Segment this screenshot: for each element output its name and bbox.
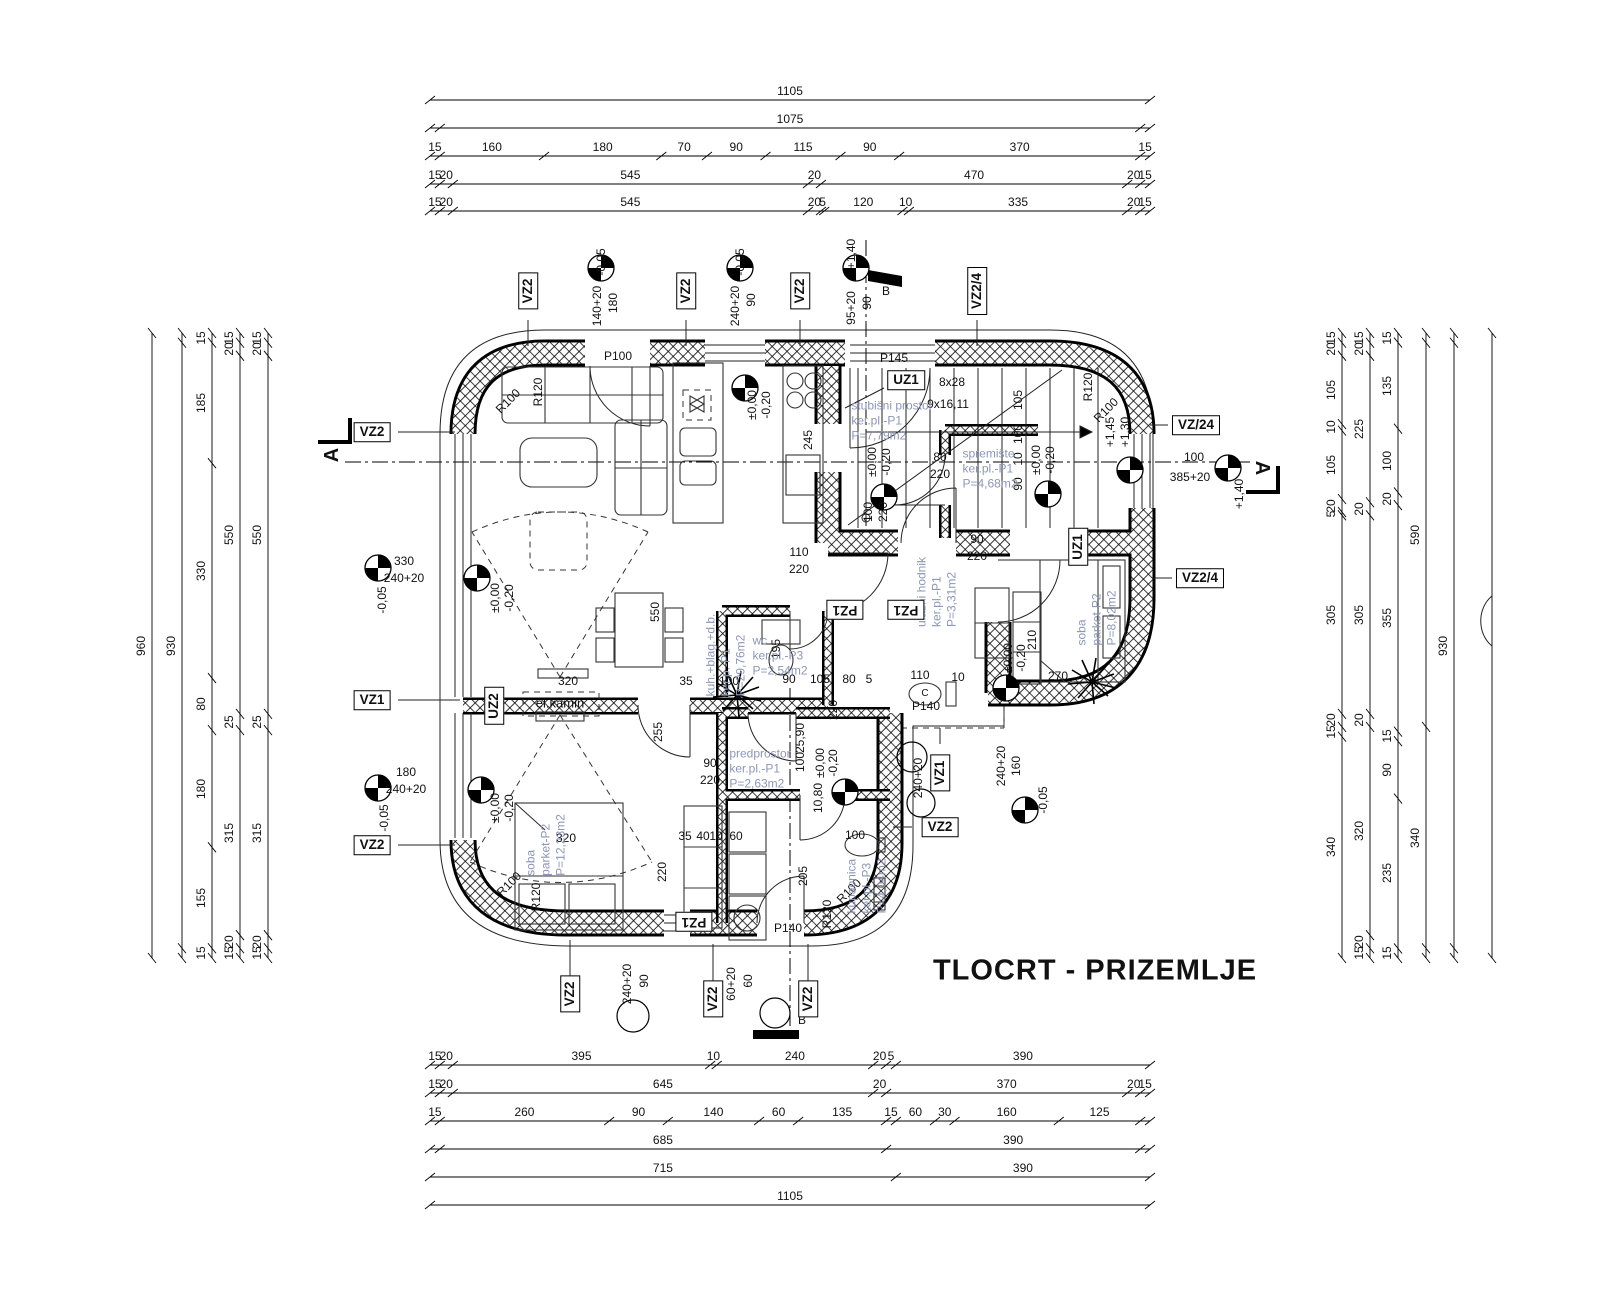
annotation: P140: [912, 700, 940, 712]
wall-type-marker: VZ1: [354, 690, 391, 710]
wall-type-marker: UZ1: [887, 370, 925, 390]
annotation: 110: [910, 669, 929, 681]
dim-label: 15: [1138, 196, 1151, 208]
annotation: 35: [679, 675, 692, 687]
annotation: 220: [700, 774, 720, 786]
wall-type-marker: VZ2: [354, 835, 391, 855]
annotation: 5: [866, 673, 873, 685]
dim-label: 15: [1381, 947, 1393, 960]
dim-label: 90: [730, 141, 743, 153]
dim-label: 15: [428, 1106, 441, 1118]
wall-type-marker: VZ1: [930, 755, 950, 792]
annotation: 245: [802, 430, 814, 450]
dim-label: 305: [1353, 605, 1365, 625]
wall-type-marker: PZ1: [827, 600, 864, 620]
annotation: 100: [1184, 451, 1204, 463]
dim-label: 390: [1013, 1162, 1033, 1174]
annotation: 100: [794, 752, 806, 772]
annotation: 100: [862, 502, 874, 522]
annotation: +1,40: [845, 239, 857, 269]
wall-type-marker: VZ/24: [1172, 415, 1220, 435]
dim-label: 60: [909, 1106, 922, 1118]
wall-type-marker: VZ2: [518, 273, 538, 310]
dim-label: 685: [653, 1134, 673, 1146]
room-label: wcker.pl.-P3P=2,54m2: [752, 632, 807, 677]
annotation: 9x16,11: [927, 398, 969, 410]
dim-label: 15: [251, 946, 263, 959]
wall-type-marker: VZ2: [676, 273, 696, 310]
annotation: 180: [396, 766, 416, 778]
dim-label: 180: [195, 779, 207, 799]
annotation: R120: [821, 900, 833, 929]
floor-plan-sheet: TLOCRT - PRIZEMLJE 110510751516018070901…: [0, 0, 1600, 1308]
annotation: 180: [607, 293, 619, 313]
dim-label: 20: [440, 1078, 453, 1090]
annotation: 240+20: [912, 758, 924, 798]
annotation: ±0,00: [1030, 445, 1042, 475]
room-label-line: ker.pl.-P1: [962, 460, 1017, 475]
annotation: 105: [810, 673, 830, 685]
wall-type-marker: VZ2/4: [1176, 568, 1224, 588]
datum-point: [832, 779, 858, 805]
datum-point: [464, 565, 490, 591]
annotation: 90: [703, 757, 716, 769]
room-label-line: kupaonica: [843, 858, 858, 913]
dim-label: 330: [195, 561, 207, 581]
dim-label: 550: [251, 525, 263, 545]
dim-label: 20: [1353, 714, 1365, 727]
annotation: 100: [1012, 424, 1024, 444]
dim-label: 340: [1325, 837, 1337, 857]
annotation: B: [882, 285, 890, 297]
annotation: 80: [842, 673, 855, 685]
annotation: -0,20: [1015, 644, 1027, 671]
dim-label: 15: [1138, 141, 1151, 153]
dim-label: 1105: [777, 85, 803, 97]
dim-label: 60: [772, 1106, 785, 1118]
dim-label: 140: [703, 1106, 723, 1118]
dim-label: 370: [997, 1078, 1017, 1090]
dim-label: 590: [1409, 525, 1421, 545]
dim-label: 20: [223, 343, 235, 356]
dim-label: 160: [997, 1106, 1017, 1118]
room-label-line: wc: [752, 632, 807, 647]
dim-label: 340: [1409, 828, 1421, 848]
room-label-line: ker.pl.-P3: [752, 647, 807, 662]
annotation: 220: [827, 700, 839, 720]
annotation: 240+20: [384, 572, 424, 584]
dim-label: 100: [1381, 451, 1393, 471]
annotation: 60+20: [725, 967, 737, 1001]
dim-label: 320: [1353, 821, 1365, 841]
dim-label: 10: [899, 196, 912, 208]
annotation: 10: [709, 830, 722, 842]
annotation: 110: [789, 546, 808, 558]
datum-point: [1117, 457, 1143, 483]
annotation: P140: [774, 922, 802, 934]
room-label-line: ker.pl.-P1: [928, 557, 943, 627]
dim-label: 20: [251, 343, 263, 356]
datum-point: [1012, 797, 1038, 823]
room-label-line: P=3,31m2: [944, 557, 959, 627]
dim-label: 20: [873, 1050, 886, 1062]
annotation: 205: [797, 866, 809, 886]
room-label-line: soba: [1073, 590, 1088, 645]
dim-label: 15: [195, 331, 207, 344]
room-label-line: P=7,79m2: [851, 428, 932, 443]
dim-label: 80: [195, 697, 207, 710]
annotation: 270: [1048, 670, 1068, 682]
dim-label: 645: [653, 1078, 673, 1090]
annotation: +1,40: [1233, 479, 1245, 509]
dim-label: 90: [632, 1106, 645, 1118]
room-label: kupaonicaker.pl.-P3P=4,04m2: [843, 858, 888, 913]
dim-label: 135: [832, 1106, 852, 1118]
dim-label: 5: [819, 196, 826, 208]
room-label-line: P=8,02m2: [1104, 590, 1119, 645]
annotation: 255: [652, 722, 664, 742]
dim-label: 20: [440, 169, 453, 181]
wall-type-marker: VZ2: [703, 981, 723, 1018]
room-label: sobaparket-P2P=8,02m2: [1073, 590, 1118, 645]
annotation: -0,05: [734, 248, 746, 275]
wall-type-marker: VZ2/4: [967, 267, 987, 315]
annotation: -0,20: [827, 749, 839, 776]
dim-label: 315: [223, 823, 235, 843]
wall-type-marker: VZ2: [560, 976, 580, 1013]
dim-label: 5: [888, 1050, 895, 1062]
dim-label: 70: [677, 141, 690, 153]
room-label-line: P=2,63m2: [729, 776, 790, 791]
annotation: 220: [967, 550, 987, 562]
annotation: 220: [656, 862, 668, 882]
room-label-line: P=4,04m2: [874, 858, 889, 913]
annotation: 105: [1012, 390, 1024, 410]
dim-label: 240: [785, 1050, 805, 1062]
annotation: 160: [1010, 756, 1022, 776]
annotation: el.kamin: [536, 697, 584, 710]
dim-label: 105: [1325, 455, 1337, 475]
wall-type-marker: VZ2: [790, 273, 810, 310]
annotation: 320: [558, 675, 578, 687]
annotation: ±0,00: [866, 447, 878, 477]
annotation: C: [921, 689, 928, 699]
annotation: 240+20: [995, 746, 1007, 786]
dim-label: 1105: [777, 1190, 803, 1202]
room-label-line: parket-P2: [1088, 590, 1103, 645]
annotation: 240+20: [386, 783, 426, 795]
annotation: -0,05: [378, 804, 390, 831]
annotation: 40: [696, 830, 709, 842]
dim-label: 15: [1325, 725, 1337, 738]
dim-label: 225: [1353, 419, 1365, 439]
dim-label: 470: [964, 169, 984, 181]
annotation: 220: [930, 468, 950, 480]
annotation: P100: [604, 350, 632, 362]
dim-label: 25: [223, 715, 235, 728]
room-label-line: ker.pl.-P1: [851, 412, 932, 427]
dim-label: 395: [571, 1050, 591, 1062]
annotation: 90: [970, 533, 983, 545]
dim-label: 15: [223, 946, 235, 959]
annotation: -0,05: [595, 248, 607, 275]
annotation: -0,05: [1037, 786, 1049, 813]
dim-label: 155: [195, 888, 207, 908]
dim-label: 15: [195, 946, 207, 959]
dim-label: 260: [514, 1106, 534, 1118]
annotation: ±0,00: [1002, 643, 1014, 673]
dim-label: 10: [1325, 421, 1337, 434]
annotation: 95+20: [845, 291, 857, 325]
annotation: P145: [880, 352, 908, 364]
annotation: -0,20: [503, 584, 515, 611]
datum-point: [1215, 455, 1241, 481]
annotation: 10,80: [812, 783, 824, 813]
wall-type-marker: PZ1: [676, 912, 713, 932]
dim-label: 30: [938, 1106, 951, 1118]
room-label-line: kuh.+blag.+d.b.: [702, 614, 717, 697]
wall-type-marker: UZ1: [1068, 528, 1088, 566]
annotation: +1,30: [1119, 417, 1131, 447]
wall-type-marker: PZ1: [888, 600, 925, 620]
dim-label: 15: [1138, 169, 1151, 181]
wall-type-marker: UZ2: [484, 687, 504, 725]
annotation: -0,20: [503, 794, 515, 821]
room-label-line: P=4,68m2: [962, 476, 1017, 491]
dim-label: 120: [853, 196, 873, 208]
annotation: 90: [861, 296, 873, 309]
annotation: 550: [649, 602, 661, 622]
dim-label: 125: [1089, 1106, 1109, 1118]
dim-label: 15: [428, 141, 441, 153]
dim-label: 115: [793, 141, 812, 153]
dim-label: 180: [593, 141, 613, 153]
annotation: A: [1252, 461, 1272, 475]
annotation: ±0,00: [489, 793, 501, 823]
dim-label: 105: [1325, 380, 1337, 400]
datum-point: [1035, 481, 1061, 507]
dim-label: 15: [1381, 331, 1393, 344]
dim-label: 20: [873, 1078, 886, 1090]
datum-point: [993, 675, 1019, 701]
dim-label: 90: [863, 141, 876, 153]
annotation: 220: [877, 502, 889, 522]
room-label-line: P=2,54m2: [752, 663, 807, 678]
room-label: stubišni prostorker.pl.-P1P=7,79m2: [851, 397, 932, 442]
room-label: sobaparket-P2P=12,23m2: [522, 814, 567, 876]
room-label-line: ker.pl.-P1: [729, 760, 790, 775]
room-label-line: soba: [522, 814, 537, 876]
dim-label: 5: [1325, 510, 1337, 517]
annotation: R120: [1082, 373, 1094, 402]
dim-label: 235: [1381, 863, 1393, 883]
annotation: R120: [530, 883, 542, 912]
dim-label: 930: [165, 635, 177, 655]
dim-label: 20: [1325, 343, 1337, 356]
room-label-line: ker.pl.-P3: [858, 858, 873, 913]
dim-label: 15: [1353, 946, 1365, 959]
dim-label: 20: [808, 169, 821, 181]
annotation: -0,20: [1044, 446, 1056, 473]
dim-label: 355: [1381, 608, 1393, 628]
dim-label: 1075: [777, 113, 804, 125]
dim-label: 20: [440, 1050, 453, 1062]
dim-label: 545: [620, 196, 640, 208]
dim-label: 135: [1381, 376, 1393, 396]
annotation: -0,05: [376, 586, 388, 613]
dim-label: 20: [440, 196, 453, 208]
annotation: 90: [745, 293, 757, 306]
dim-label: 545: [620, 169, 640, 181]
room-label: kuh.+blag.+d.b.ker.p.-P1P=29,76m2: [702, 614, 747, 697]
dim-label: 715: [653, 1162, 673, 1174]
room-label: predprostorker.pl.-P1P=2,63m2: [729, 745, 790, 790]
annotation: 80: [933, 451, 946, 463]
annotation: 25,90: [794, 723, 806, 753]
drawing-title: TLOCRT - PRIZEMLJE: [933, 955, 1257, 988]
dim-label: 315: [251, 823, 263, 843]
annotation: ±0,00: [746, 390, 758, 420]
wall-type-marker: VZ2: [922, 817, 959, 837]
annotation: 8x28: [939, 376, 965, 388]
dim-label: 370: [1010, 141, 1030, 153]
annotation: 90: [638, 974, 650, 987]
dim-label: 960: [135, 635, 147, 655]
dim-label: 90: [1381, 763, 1393, 776]
dim-label: 185: [195, 393, 207, 413]
annotation: 60: [729, 830, 742, 842]
annotation: 10: [951, 671, 964, 683]
annotation: 385+20: [1170, 471, 1210, 483]
dim-label: 10: [707, 1050, 720, 1062]
annotation: 220: [789, 563, 809, 575]
dim-label: 390: [1013, 1050, 1033, 1062]
dim-label: 15: [1381, 730, 1393, 743]
annotation: -0,20: [880, 448, 892, 475]
dim-label: 550: [223, 525, 235, 545]
room-label-line: P=29,76m2: [733, 614, 748, 697]
dim-label: 335: [1008, 196, 1028, 208]
dim-label: 25: [251, 715, 263, 728]
annotation: ±0,00: [814, 748, 826, 778]
dim-label: 930: [1437, 635, 1449, 655]
wall-type-marker: VZ2: [798, 981, 818, 1018]
wall-type-marker: VZ2: [354, 422, 391, 442]
dim-label: 20: [1353, 502, 1365, 515]
room-label-line: P=12,23m2: [553, 814, 568, 876]
marker-leaders: [398, 320, 1492, 982]
room-label-line: stubišni prostor: [851, 397, 932, 412]
dim-label: 160: [482, 141, 502, 153]
annotation: +1,45: [1104, 417, 1116, 447]
annotation: A: [322, 448, 342, 462]
annotation: 100: [845, 829, 865, 841]
annotation: 60: [742, 974, 754, 987]
room-label-line: parket-P2: [537, 814, 552, 876]
annotation: 330: [394, 555, 414, 567]
dim-label: 15: [884, 1106, 897, 1118]
dim-label: 20: [1381, 492, 1393, 505]
annotation: -0,20: [760, 391, 772, 418]
annotation: 35: [678, 830, 691, 842]
annotation: 240+20: [621, 964, 633, 1004]
annotation: R120: [532, 378, 544, 407]
annotation: 140+20: [591, 286, 603, 326]
room-label-line: spremište: [962, 445, 1017, 460]
room-label: spremišteker.pl.-P1P=4,68m2: [962, 445, 1017, 490]
dim-label: 305: [1325, 605, 1337, 625]
room-label-line: predprostor: [729, 745, 790, 760]
annotation: 240+20: [729, 286, 741, 326]
dim-label: 20: [1353, 343, 1365, 356]
room-label-line: ker.p.-P1: [717, 614, 732, 697]
dim-label: 15: [1138, 1078, 1151, 1090]
annotation: ±0,00: [489, 583, 501, 613]
dim-label: 390: [1003, 1134, 1023, 1146]
